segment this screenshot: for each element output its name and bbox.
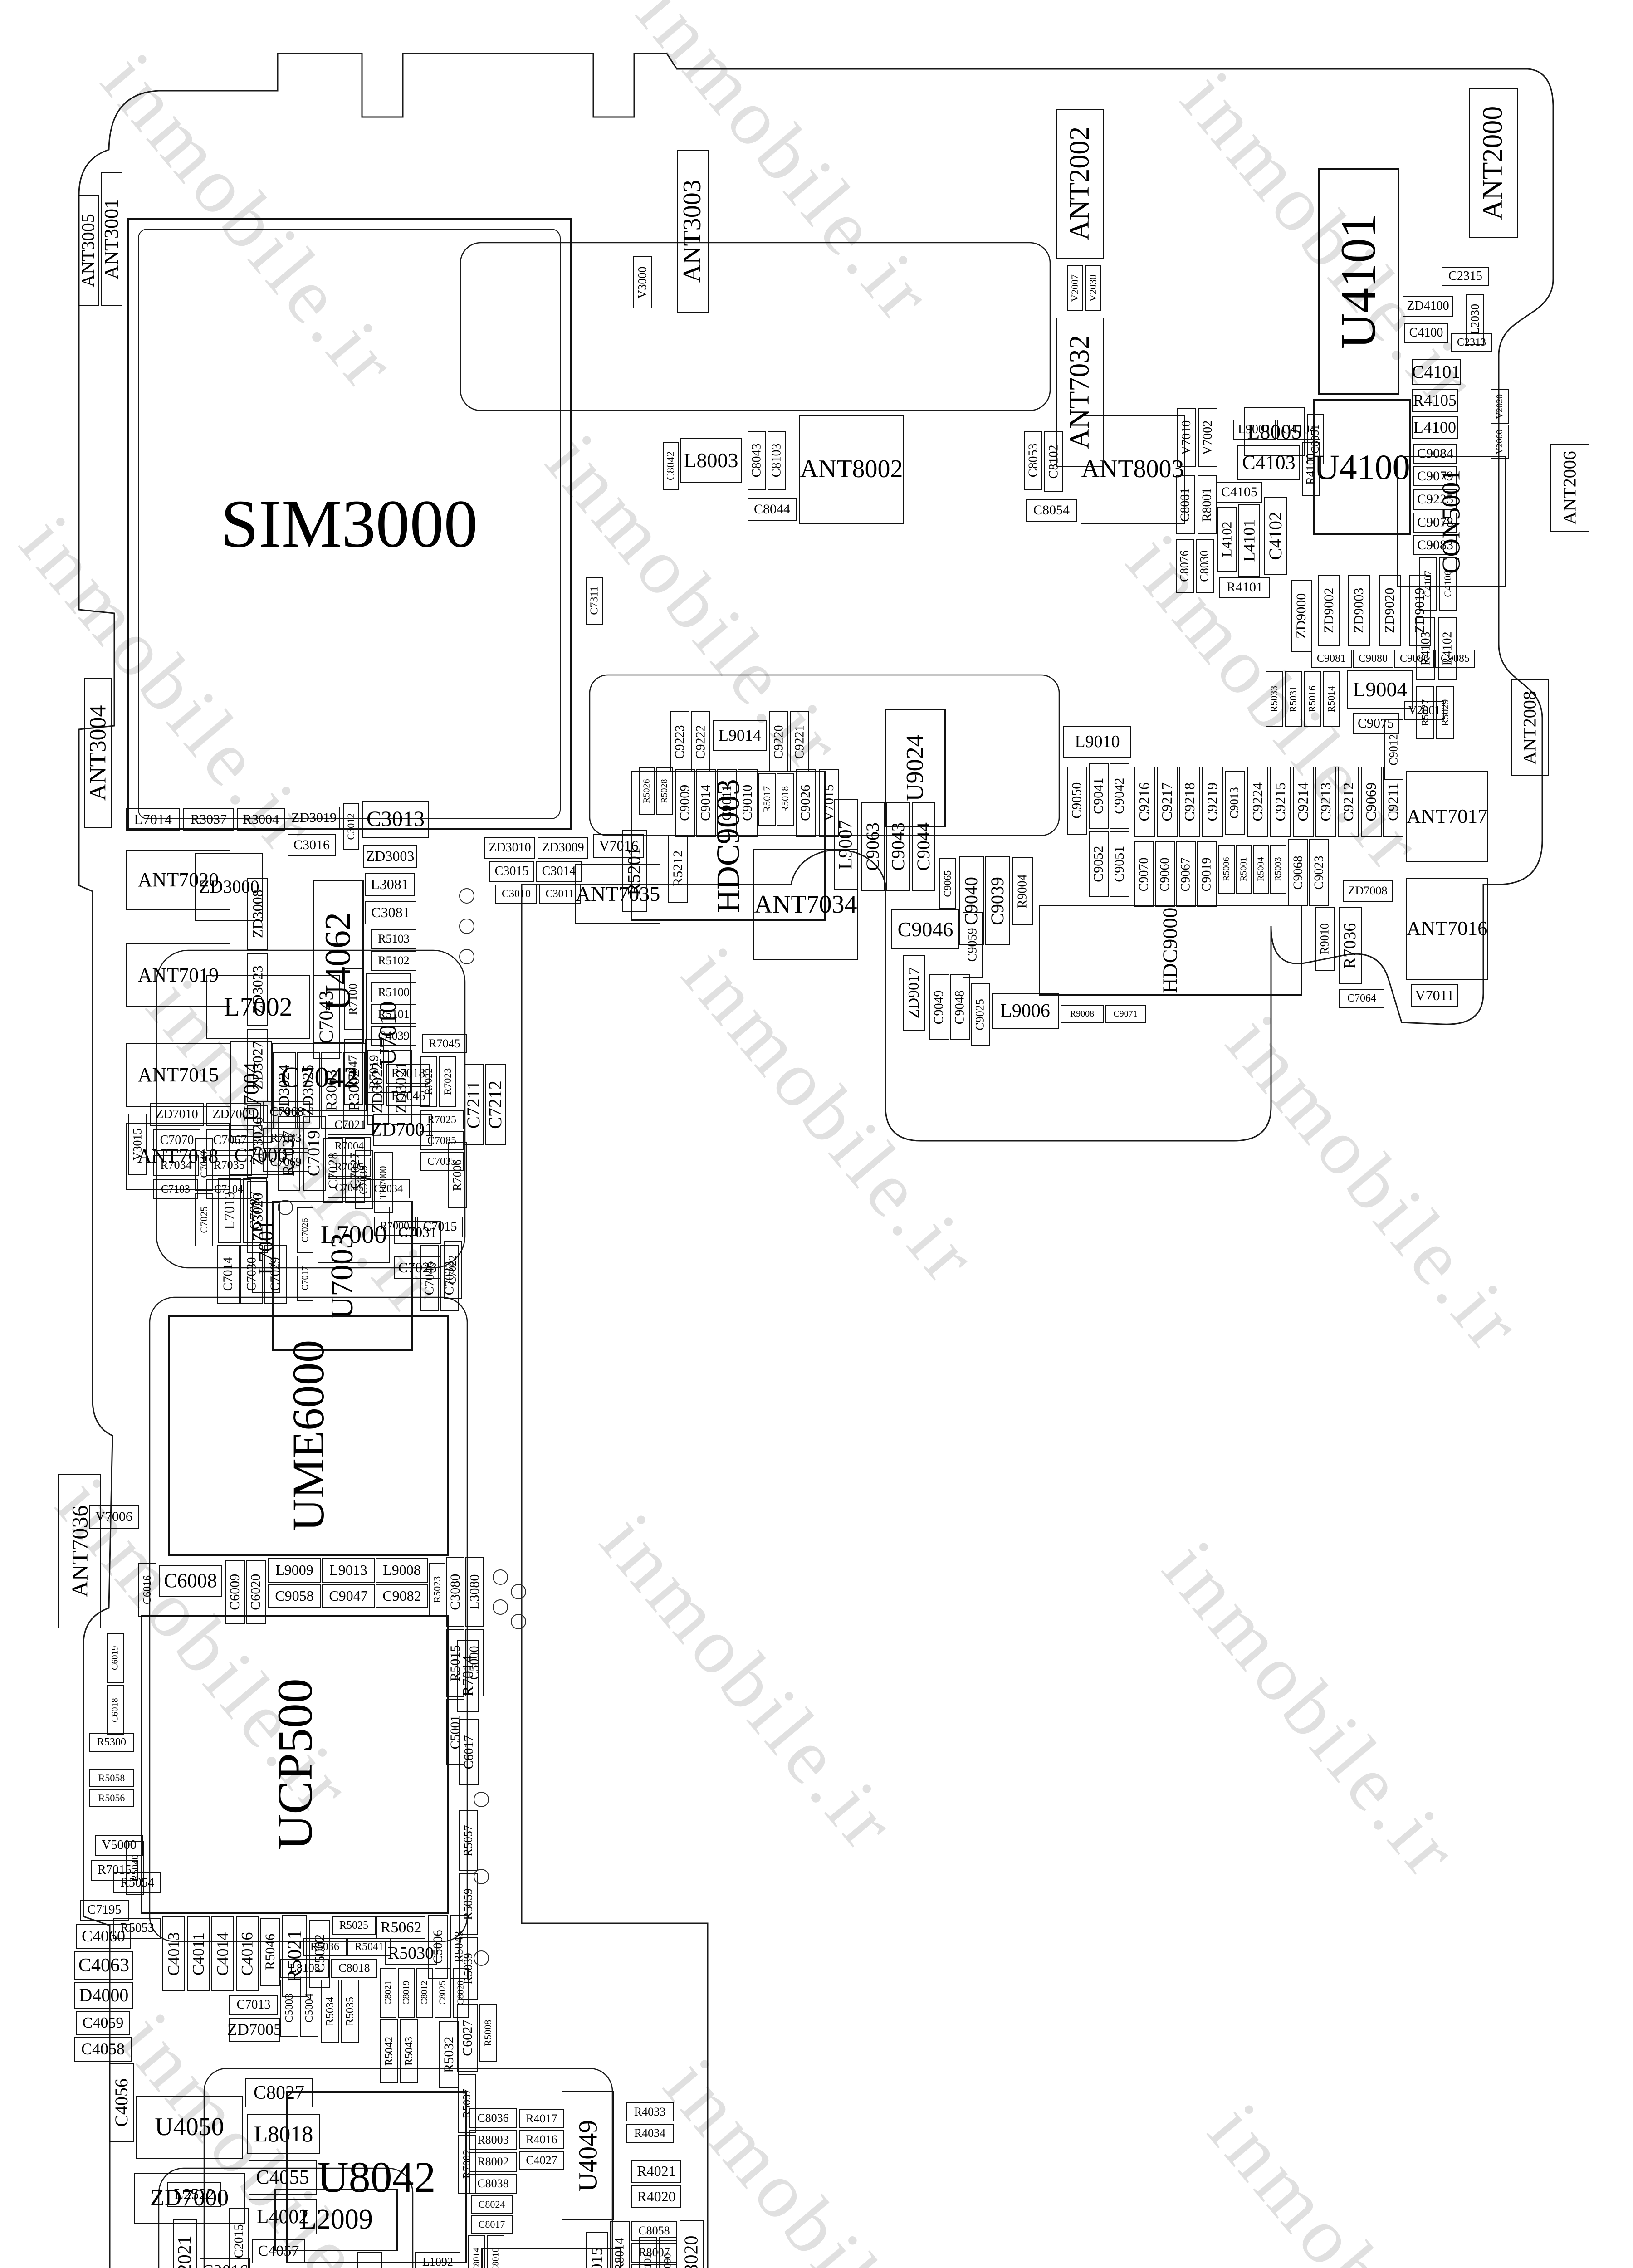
component-label: L9014 — [719, 728, 761, 743]
component-label: C9025 — [975, 999, 986, 1030]
component-r4105: R4105 — [1412, 389, 1458, 412]
component-c7014: C7014 — [217, 1245, 240, 1304]
component-v3015: V3015 — [128, 1114, 147, 1175]
component-zd9000: ZD9000 — [1291, 580, 1312, 652]
component-r7045: R7045 — [422, 1034, 467, 1053]
component-label: R5102 — [378, 955, 409, 966]
component-label: C9019 — [1201, 857, 1213, 891]
component-c3010: C3010 — [495, 885, 537, 904]
component-label: R5042 — [384, 2037, 394, 2066]
component-l8103: L8103 — [280, 1959, 329, 1978]
component-r4033: R4033 — [626, 2102, 674, 2121]
component-label: C7049 — [200, 1151, 209, 1178]
component-c4105: C4105 — [1217, 482, 1262, 503]
component-r5056: R5056 — [89, 1789, 134, 1807]
component-label: U4050 — [155, 2116, 224, 2139]
component-zd9002: ZD9002 — [1318, 575, 1340, 646]
component-label: C7026 — [301, 1218, 309, 1242]
component-v2020: V2020 — [1491, 389, 1509, 424]
component-l9014: L9014 — [713, 720, 767, 751]
component-label: R5003 — [1274, 857, 1282, 881]
component-c7064: C7064 — [1339, 989, 1384, 1008]
component-c2016: C2016 — [200, 2258, 250, 2268]
component-r9010: R9010 — [1315, 907, 1335, 971]
component-label: R5018 — [781, 786, 790, 813]
component-c8053: C8053 — [1024, 431, 1042, 490]
component-label: L7013 — [223, 1192, 236, 1230]
component-c7034: C7034 — [367, 1179, 410, 1198]
component-c9068: C9068 — [1288, 839, 1308, 906]
component-c6020: C6020 — [246, 1560, 266, 1624]
testpoint-icon — [474, 1792, 489, 1807]
component-v7002: V7002 — [1198, 408, 1217, 467]
component-label: C7029 — [269, 1257, 281, 1291]
component-l9004: L9004 — [1347, 670, 1413, 709]
component-label: C6008 — [164, 1572, 217, 1590]
component-c5003: C5003 — [280, 1980, 298, 2037]
component-d4000: D4000 — [74, 1982, 133, 2009]
component-label: C9071 — [1113, 1010, 1137, 1018]
component-label: R3004 — [243, 813, 279, 826]
component-c9051: C9051 — [1110, 831, 1129, 897]
component-label: ZD4100 — [1407, 300, 1449, 312]
component-c2010: C2010 — [357, 2252, 382, 2268]
component-ant7016: ANT7016 — [1406, 878, 1488, 980]
component-r5058: R5058 — [89, 1769, 134, 1787]
component-r5004: R5004 — [1253, 845, 1269, 894]
component-ant7020: ANT7020 — [126, 850, 230, 910]
component-label: C9014 — [699, 785, 712, 821]
component-label: R4021 — [637, 2165, 675, 2178]
component-label: ANT2006 — [1562, 451, 1579, 524]
component-label: R5006 — [1222, 857, 1231, 881]
component-c8081: C8081 — [1176, 475, 1195, 534]
component-r5025: R5025 — [332, 1916, 376, 1935]
component-c8012: C8012 — [416, 1968, 433, 2018]
component-label: C4059 — [83, 2016, 124, 2030]
component-c4059: C4059 — [76, 2011, 130, 2035]
component-c9080: C9080 — [1353, 650, 1393, 668]
component-c7049: C7049 — [195, 1138, 213, 1191]
component-c4104: C4104 — [1277, 420, 1320, 440]
component-label: R4034 — [634, 2128, 665, 2139]
component-c7028: C7028 — [323, 1138, 343, 1203]
component-label: R3037 — [191, 813, 227, 826]
component-label: C2313 — [1457, 337, 1486, 347]
component-label: L9013 — [329, 1564, 367, 1577]
component-label: L9004 — [1353, 680, 1407, 699]
component-c9012: C9012 — [1384, 719, 1403, 780]
component-r9004: R9004 — [1012, 857, 1033, 925]
component-c7023: C7023 — [394, 1256, 441, 1279]
component-zd3008: ZD3008 — [247, 878, 268, 950]
component-c7017: C7017 — [297, 1256, 313, 1301]
component-label: C9211 — [1386, 782, 1399, 821]
component-label: C6009 — [229, 1574, 241, 1610]
component-c8019: C8019 — [398, 1968, 415, 2018]
component-label: R5056 — [98, 1794, 125, 1803]
component-label: L8020 — [683, 2235, 701, 2268]
component-label: L2522 — [174, 2187, 215, 2201]
component-c9070: C9070 — [1134, 841, 1154, 907]
component-v2030: V2030 — [1085, 265, 1101, 311]
component-label: C6027 — [461, 2020, 474, 2056]
component-label: UME6000 — [288, 1340, 329, 1531]
component-label: C9050 — [1071, 782, 1083, 819]
component-label: C9052 — [1092, 846, 1105, 882]
component-label: R9008 — [1070, 1010, 1094, 1018]
component-c9013: C9013 — [1225, 771, 1245, 835]
component-l1101: L1101 — [639, 2237, 657, 2268]
component-label: R5008 — [484, 2020, 493, 2047]
component-ant2008: ANT2008 — [1511, 679, 1549, 776]
component-c4056: C4056 — [109, 2063, 134, 2142]
component-c7027: C7027 — [345, 1138, 365, 1203]
component-label: C8021 — [384, 1980, 392, 2004]
component-label: R7036 — [1343, 923, 1359, 968]
component-label: L1101 — [643, 2253, 652, 2268]
component-c7195: C7195 — [80, 1900, 129, 1921]
component-label: U4101 — [1335, 213, 1381, 349]
component-label: R7025 — [427, 1115, 456, 1125]
component-label: R5103 — [378, 934, 409, 944]
component-label: R5036 — [310, 1942, 339, 1952]
component-label: ANT2002 — [1067, 127, 1093, 240]
component-zd7005: ZD7005 — [229, 2018, 280, 2042]
component-ant2002: ANT2002 — [1056, 109, 1104, 259]
component-r5030: R5030 — [385, 1941, 437, 1965]
component-label: C9215 — [1274, 782, 1287, 821]
component-r5031: R5031 — [1285, 671, 1302, 727]
component-c8103: C8103 — [768, 431, 786, 490]
component-c4060: C4060 — [76, 1924, 131, 1949]
component-r5017: R5017 — [758, 773, 776, 826]
component-r5014: R5014 — [1323, 671, 1340, 727]
component-label: V7006 — [95, 1510, 132, 1523]
component-label: R5212 — [672, 850, 684, 887]
component-label: C7023 — [398, 1261, 437, 1274]
component-label: C9070 — [1138, 857, 1150, 891]
component-v3000: V3000 — [633, 256, 652, 308]
component-label: R5035 — [345, 1997, 355, 2026]
component-label: R5001 — [1240, 857, 1248, 881]
component-label: R5017 — [763, 786, 772, 813]
component-label: CON5001 — [1440, 469, 1463, 574]
component-label: R8003 — [477, 2135, 508, 2146]
component-label: R5016 — [1308, 686, 1317, 713]
component-v2007: V2007 — [1067, 265, 1083, 311]
component-c8030: C8030 — [1196, 539, 1214, 593]
component-r5036: R5036 — [303, 1938, 347, 1956]
component-c7030: C7030 — [240, 1245, 263, 1304]
component-label: R8002 — [477, 2156, 508, 2167]
component-r5057: R5057 — [459, 1810, 478, 1871]
component-label: ANT3004 — [87, 705, 109, 801]
component-c9026: C9026 — [796, 769, 816, 837]
component-label: ANT7020 — [138, 871, 219, 889]
component-label: R5004 — [1257, 857, 1265, 881]
component-label: C9216 — [1138, 782, 1151, 821]
component-label: C3014 — [542, 865, 576, 877]
component-label: ANT7016 — [1407, 919, 1487, 938]
component-label: V2030 — [1089, 274, 1098, 302]
component-c8036: C8036 — [469, 2108, 517, 2128]
component-label: L9010 — [1075, 734, 1120, 750]
component-c4013: C4013 — [162, 1916, 185, 1991]
component-l8003: L8003 — [680, 438, 742, 483]
component-label: U9024 — [904, 734, 927, 801]
component-label: L4100 — [1413, 420, 1456, 435]
testpoint-icon — [493, 1569, 508, 1585]
component-c7026: C7026 — [297, 1207, 313, 1253]
component-label: R4105 — [1413, 393, 1457, 408]
component-label: C9214 — [1296, 782, 1310, 821]
component-label: V7002 — [1202, 420, 1214, 455]
component-label: C8014 — [473, 2248, 481, 2268]
component-label: C7022 — [448, 1255, 458, 1284]
component-label: R5031 — [1289, 686, 1298, 713]
component-label: R5201 — [626, 847, 643, 895]
component-label: C8019 — [402, 1980, 411, 2004]
component-c9042: C9042 — [1110, 763, 1129, 829]
component-c9224: C9224 — [1247, 767, 1268, 837]
component-label: C9063 — [865, 822, 881, 871]
component-c7031: C7031 — [394, 1221, 441, 1244]
component-label: C4103 — [1242, 454, 1295, 472]
component-label: C9043 — [890, 822, 907, 871]
component-label: C9013 — [1229, 787, 1240, 818]
component-label: L2030 — [1470, 304, 1481, 335]
testpoint-icon — [459, 888, 474, 904]
component-label: C8025 — [439, 1980, 447, 2004]
component-r7023: R7023 — [439, 1056, 456, 1107]
component-r3004: R3004 — [237, 808, 285, 831]
component-label: V7015 — [823, 784, 836, 821]
component-label: C5004 — [304, 1994, 314, 2023]
component-label: R4102 — [1442, 632, 1453, 666]
component-r5006: R5006 — [1218, 845, 1235, 894]
component-label: R4103 — [1420, 632, 1432, 666]
component-label: C7014 — [222, 1257, 234, 1291]
component-l9009: L9009 — [268, 1558, 321, 1583]
component-label: C7212 — [487, 1080, 504, 1129]
component-r7022: R7022 — [420, 1056, 437, 1107]
component-label: C7211 — [465, 1080, 482, 1128]
component-label: C9059 — [967, 928, 979, 962]
component-label: C4101 — [1412, 364, 1461, 381]
component-r5008: R5008 — [479, 2004, 497, 2062]
component-c9221: C9221 — [790, 711, 809, 772]
component-r5212: R5212 — [668, 835, 688, 903]
component-c9060: C9060 — [1155, 841, 1175, 907]
component-label: R7045 — [429, 1038, 460, 1049]
component-label: C9042 — [1113, 778, 1126, 814]
component-c7013: C7013 — [229, 1995, 278, 2015]
component-c9011: C9011 — [717, 769, 737, 837]
component-label: C7019 — [307, 1130, 323, 1176]
component-ant3003: ANT3003 — [677, 150, 709, 313]
component-label: V2007 — [1071, 274, 1080, 302]
component-label: ANT3001 — [103, 199, 121, 279]
component-label: R5054 — [120, 1877, 154, 1889]
component-c6017: C6017 — [459, 1719, 479, 1785]
component-ant3001: ANT3001 — [101, 172, 122, 306]
component-label: L9009 — [275, 1564, 313, 1577]
component-c6009: C6009 — [225, 1560, 245, 1624]
component-label: C8024 — [479, 2200, 505, 2209]
component-c9009: C9009 — [675, 769, 695, 837]
component-label: C9218 — [1183, 782, 1196, 821]
component-c4063: C4063 — [74, 1951, 133, 1980]
component-label: C9010 — [741, 785, 754, 821]
component-ant2000: ANT2000 — [1469, 88, 1518, 238]
component-u9024: U9024 — [885, 709, 946, 827]
component-ant3004: ANT3004 — [84, 678, 112, 828]
component-u1010: U1010 — [481, 2248, 621, 2268]
component-r3037: R3037 — [183, 808, 234, 831]
component-v7006: V7006 — [89, 1505, 139, 1529]
component-c9065: C9065 — [939, 858, 956, 909]
component-label: C9223 — [674, 725, 686, 759]
component-c7103: C7103 — [153, 1179, 198, 1199]
component-label: L7002 — [224, 995, 292, 1019]
component-label: L7014 — [134, 813, 172, 826]
component-r7036: R7036 — [1339, 907, 1362, 984]
component-c8021: C8021 — [380, 1968, 396, 2018]
component-label: C7064 — [1347, 993, 1376, 1003]
component-c7070: C7070 — [153, 1129, 200, 1151]
component-c2313: C2313 — [1451, 333, 1492, 352]
component-label: R7034 — [160, 1160, 191, 1171]
component-r8003: R8003 — [469, 2130, 517, 2150]
component-ant7032: ANT7032 — [1056, 318, 1104, 467]
component-label: L1092 — [422, 2257, 453, 2268]
component-c2315: C2315 — [1442, 267, 1489, 286]
component-label: ZD3009 — [542, 842, 584, 854]
component-r5016: R5016 — [1304, 671, 1321, 727]
component-ant7034: ANT7034 — [753, 849, 858, 960]
component-c9023: C9023 — [1309, 839, 1329, 906]
component-label: C7070 — [160, 1134, 194, 1146]
component-c3016: C3016 — [288, 834, 336, 856]
component-ant8002: ANT8002 — [799, 415, 904, 524]
component-c7068: C7068 — [263, 1101, 310, 1123]
component-l9001: L9001 — [1233, 420, 1276, 440]
component-zd7009: ZD7009 — [206, 1103, 261, 1126]
component-c6008: C6008 — [159, 1565, 222, 1597]
component-label: C8038 — [477, 2178, 508, 2189]
component-label: C7085 — [427, 1136, 456, 1146]
component-c9219: C9219 — [1202, 767, 1223, 837]
component-label: C8053 — [1027, 444, 1039, 478]
component-l7013: L7013 — [218, 1178, 241, 1243]
component-label: C4102 — [1267, 512, 1284, 560]
component-l3081: L3081 — [365, 873, 415, 896]
component-r5043: R5043 — [400, 2019, 418, 2083]
component-label: C9082 — [382, 1589, 421, 1603]
component-label: R5026 — [643, 779, 651, 803]
component-c9058: C9058 — [268, 1584, 321, 1608]
component-l2009: L2009 — [274, 2189, 398, 2251]
component-label: C7035 — [427, 1157, 456, 1167]
component-c8042: C8042 — [663, 442, 679, 490]
component-label: C3010 — [502, 889, 531, 899]
component-label: R5058 — [98, 1774, 125, 1783]
component-label: C9041 — [1092, 778, 1105, 814]
component-layer: ANT3005ANT3001SIM3000ANT3004ANT3003V3000… — [0, 0, 1633, 2268]
component-label: C9048 — [954, 990, 966, 1024]
component-con5001: CON5001 — [1397, 456, 1506, 587]
component-ant7017: ANT7017 — [1406, 771, 1488, 862]
component-c8025: C8025 — [435, 1968, 451, 2018]
component-label: C9213 — [1319, 782, 1332, 821]
component-label: C4016 — [240, 1932, 254, 1975]
component-r4034: R4034 — [626, 2124, 674, 2143]
component-c9019: C9019 — [1197, 841, 1217, 907]
testpoint-icon — [511, 1584, 526, 1599]
component-c9063: C9063 — [861, 802, 885, 891]
component-r4103: R4103 — [1416, 617, 1435, 680]
component-label: R4017 — [526, 2113, 557, 2124]
component-label: L3081 — [371, 878, 409, 891]
component-r9008: R9008 — [1061, 1005, 1104, 1023]
component-label: R5014 — [1327, 686, 1336, 713]
component-label: C4056 — [113, 2078, 130, 2127]
component-label: C8058 — [638, 2225, 670, 2236]
component-label: C8043 — [751, 444, 763, 478]
component-c3012: C3012 — [343, 803, 359, 850]
component-r5026: R5026 — [639, 767, 655, 815]
component-label: C9067 — [1180, 857, 1192, 891]
component-r4016: R4016 — [519, 2130, 564, 2149]
component-label: R5032 — [443, 2037, 455, 2073]
component-zd9017: ZD9017 — [903, 955, 925, 1031]
component-label: ZD7008 — [1348, 885, 1388, 896]
component-v2001: V2001 — [1404, 701, 1444, 720]
component-c7021: C7021 — [328, 1115, 373, 1135]
component-label: R5041 — [355, 1942, 384, 1952]
component-label: C8030 — [1199, 550, 1210, 582]
component-ucp500: UCP500 — [141, 1615, 449, 1914]
component-u4101: U4101 — [1318, 168, 1399, 395]
component-label: ANT3003 — [681, 180, 704, 283]
component-label: R5062 — [381, 1921, 422, 1935]
component-label: ANT2008 — [1522, 691, 1539, 764]
component-c3015: C3015 — [489, 861, 534, 882]
component-r5035: R5035 — [341, 1980, 359, 2043]
component-label: R5034 — [325, 1997, 335, 2026]
component-c7085: C7085 — [420, 1131, 464, 1150]
component-l4100: L4100 — [1412, 416, 1458, 439]
component-label: ANT2000 — [1480, 106, 1506, 220]
component-label: C3016 — [293, 839, 330, 851]
component-label: R4033 — [634, 2107, 665, 2117]
component-label: V2020 — [1496, 394, 1504, 419]
component-u4049: U4049 — [562, 2091, 614, 2220]
component-label: V7010 — [1181, 420, 1193, 455]
component-label: R8001 — [1201, 488, 1213, 522]
component-label: R7100 — [348, 983, 359, 1015]
component-label: C9060 — [1159, 857, 1171, 891]
component-r7034: R7034 — [153, 1155, 199, 1176]
component-label: R5300 — [97, 1737, 126, 1747]
component-label: L8103 — [289, 1963, 320, 1974]
component-label: C2015 — [233, 2224, 245, 2258]
testpoint-icon — [511, 1614, 526, 1629]
component-label: ZD3010 — [489, 842, 531, 854]
component-label: C4100 — [1409, 327, 1443, 339]
component-c4058: C4058 — [74, 2037, 132, 2062]
